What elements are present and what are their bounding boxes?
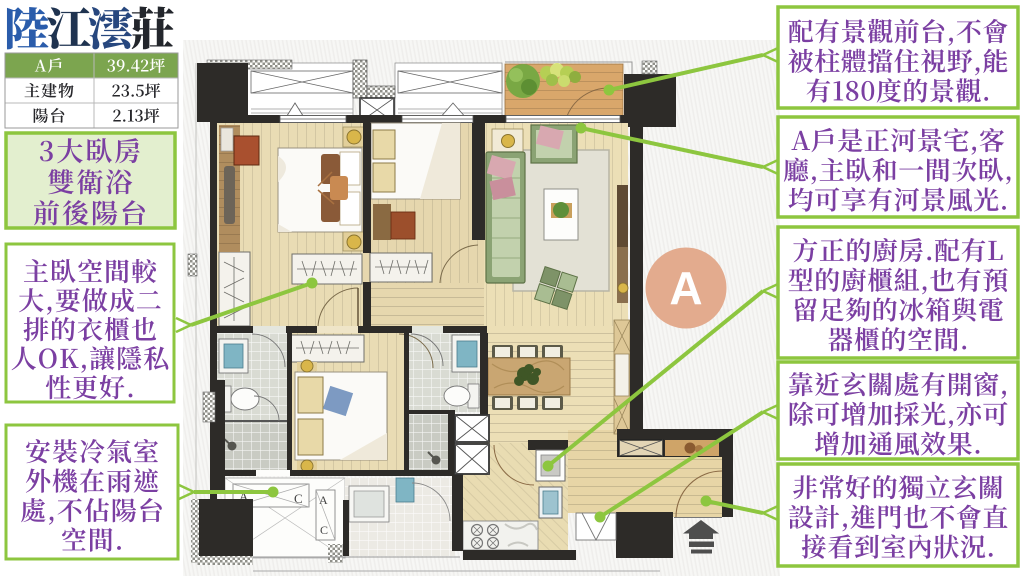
- svg-text:A: A: [319, 493, 328, 507]
- svg-text:C: C: [294, 491, 303, 506]
- svg-text:C: C: [320, 523, 328, 537]
- svg-text:A: A: [669, 262, 702, 314]
